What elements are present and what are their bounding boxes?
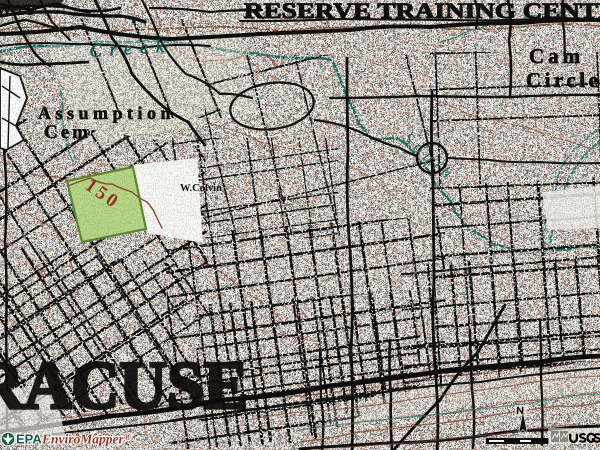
svg-text:EPA: EPA [16, 432, 42, 447]
svg-text:EnviroMapper®: EnviroMapper® [41, 432, 132, 447]
